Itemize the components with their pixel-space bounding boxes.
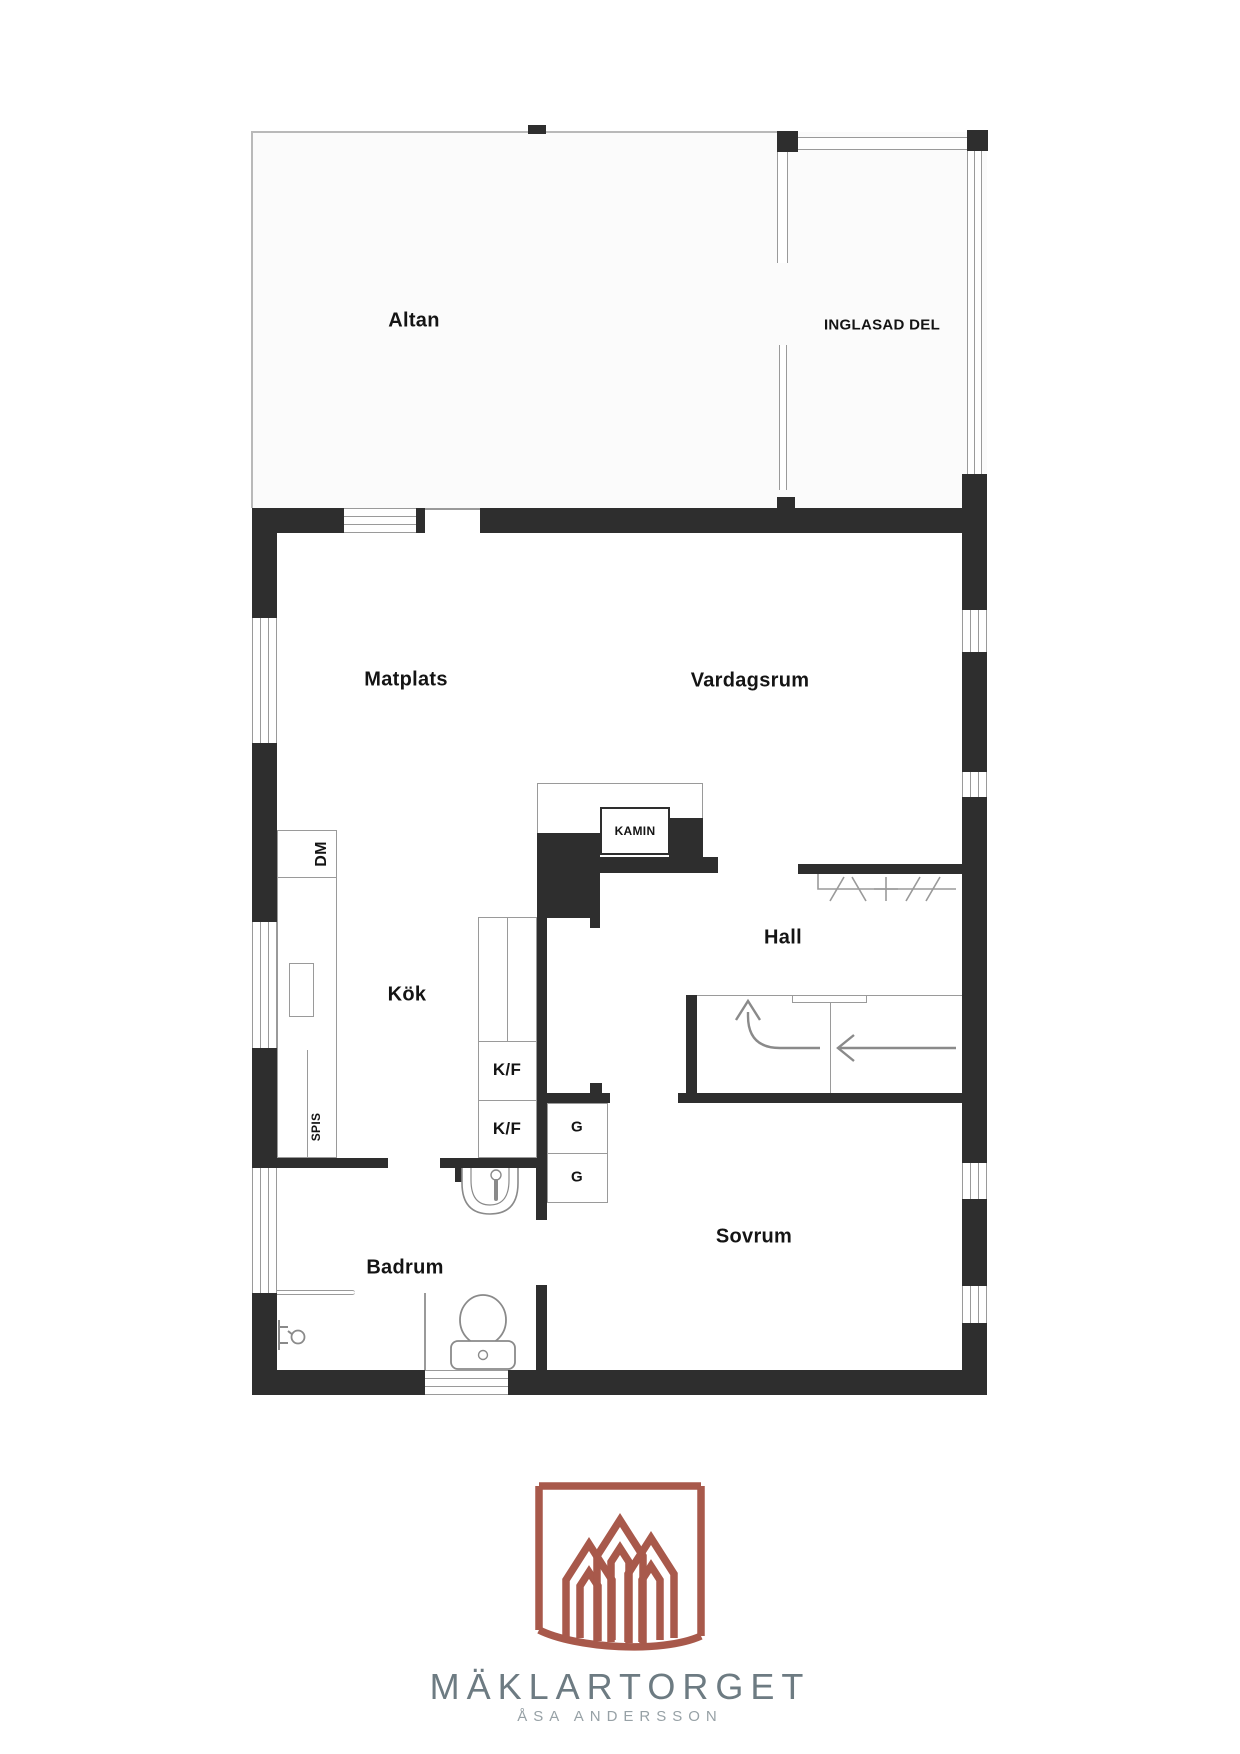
room-label-badrum: Badrum	[366, 1257, 443, 1280]
room-label-kok: Kök	[388, 984, 427, 1007]
coat-rail-icon	[818, 874, 956, 901]
logo-tower-mid-outer	[597, 1520, 643, 1643]
washbasin-icon	[462, 1168, 518, 1214]
room-label-matplats: Matplats	[364, 669, 448, 692]
shower-icon	[279, 1320, 305, 1350]
room-label-inglasad: INGLASAD DEL	[824, 317, 940, 334]
room-label-vardagsrum: Vardagsrum	[691, 670, 810, 693]
room-label-sovrum: Sovrum	[716, 1226, 792, 1249]
logo-agent-text: ÅSA ANDERSSON	[0, 1708, 1240, 1725]
floorplan-page: KAMIN DM SPIS K/F K/F G G	[0, 0, 1240, 1754]
room-label-altan: Altan	[388, 310, 440, 333]
logo-tower-right-inner	[642, 1566, 660, 1642]
logo-tower-left-outer	[566, 1544, 612, 1640]
stair-up-arrow-icon	[736, 1001, 820, 1048]
logo-brand-text: MÄKLARTORGET	[0, 1666, 1240, 1708]
room-label-hall: Hall	[764, 927, 802, 950]
stair-left-arrow-icon	[838, 1035, 956, 1061]
logo-tower-right-outer	[628, 1538, 674, 1642]
logo-emblem	[533, 1480, 707, 1658]
toilet-icon	[451, 1295, 515, 1369]
